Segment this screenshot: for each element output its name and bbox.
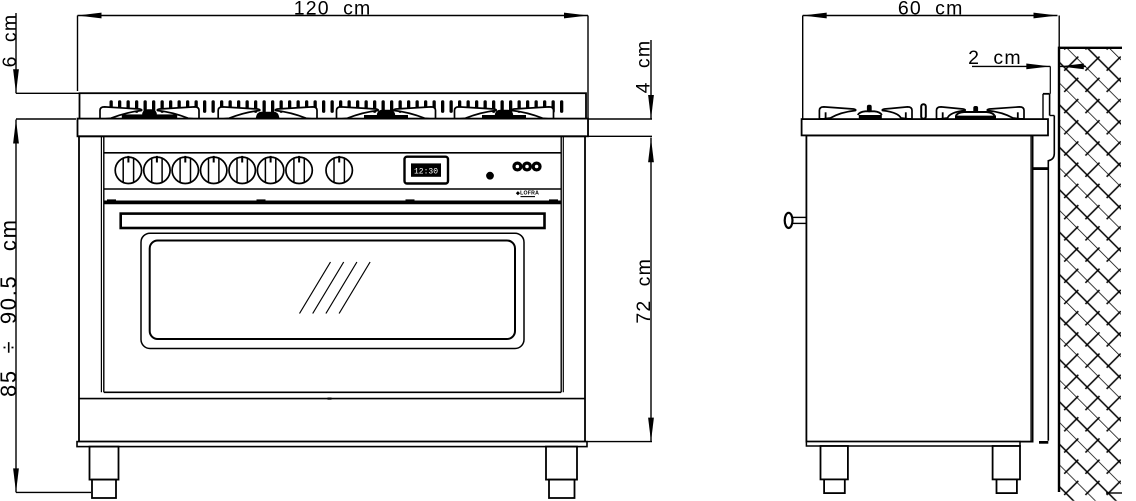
svg-text:4 cm: 4 cm bbox=[633, 40, 655, 94]
svg-text:12:30: 12:30 bbox=[414, 168, 438, 177]
svg-text:120 cm: 120 cm bbox=[294, 0, 372, 20]
svg-text:6 cm: 6 cm bbox=[0, 14, 21, 68]
svg-text:72 cm: 72 cm bbox=[633, 258, 655, 324]
svg-text:◆LOFRA: ◆LOFRA bbox=[515, 191, 539, 197]
svg-text:2 cm: 2 cm bbox=[968, 47, 1022, 69]
svg-text:60 cm: 60 cm bbox=[898, 0, 964, 20]
svg-text:85 ÷ 90.5 cm: 85 ÷ 90.5 cm bbox=[0, 218, 21, 397]
